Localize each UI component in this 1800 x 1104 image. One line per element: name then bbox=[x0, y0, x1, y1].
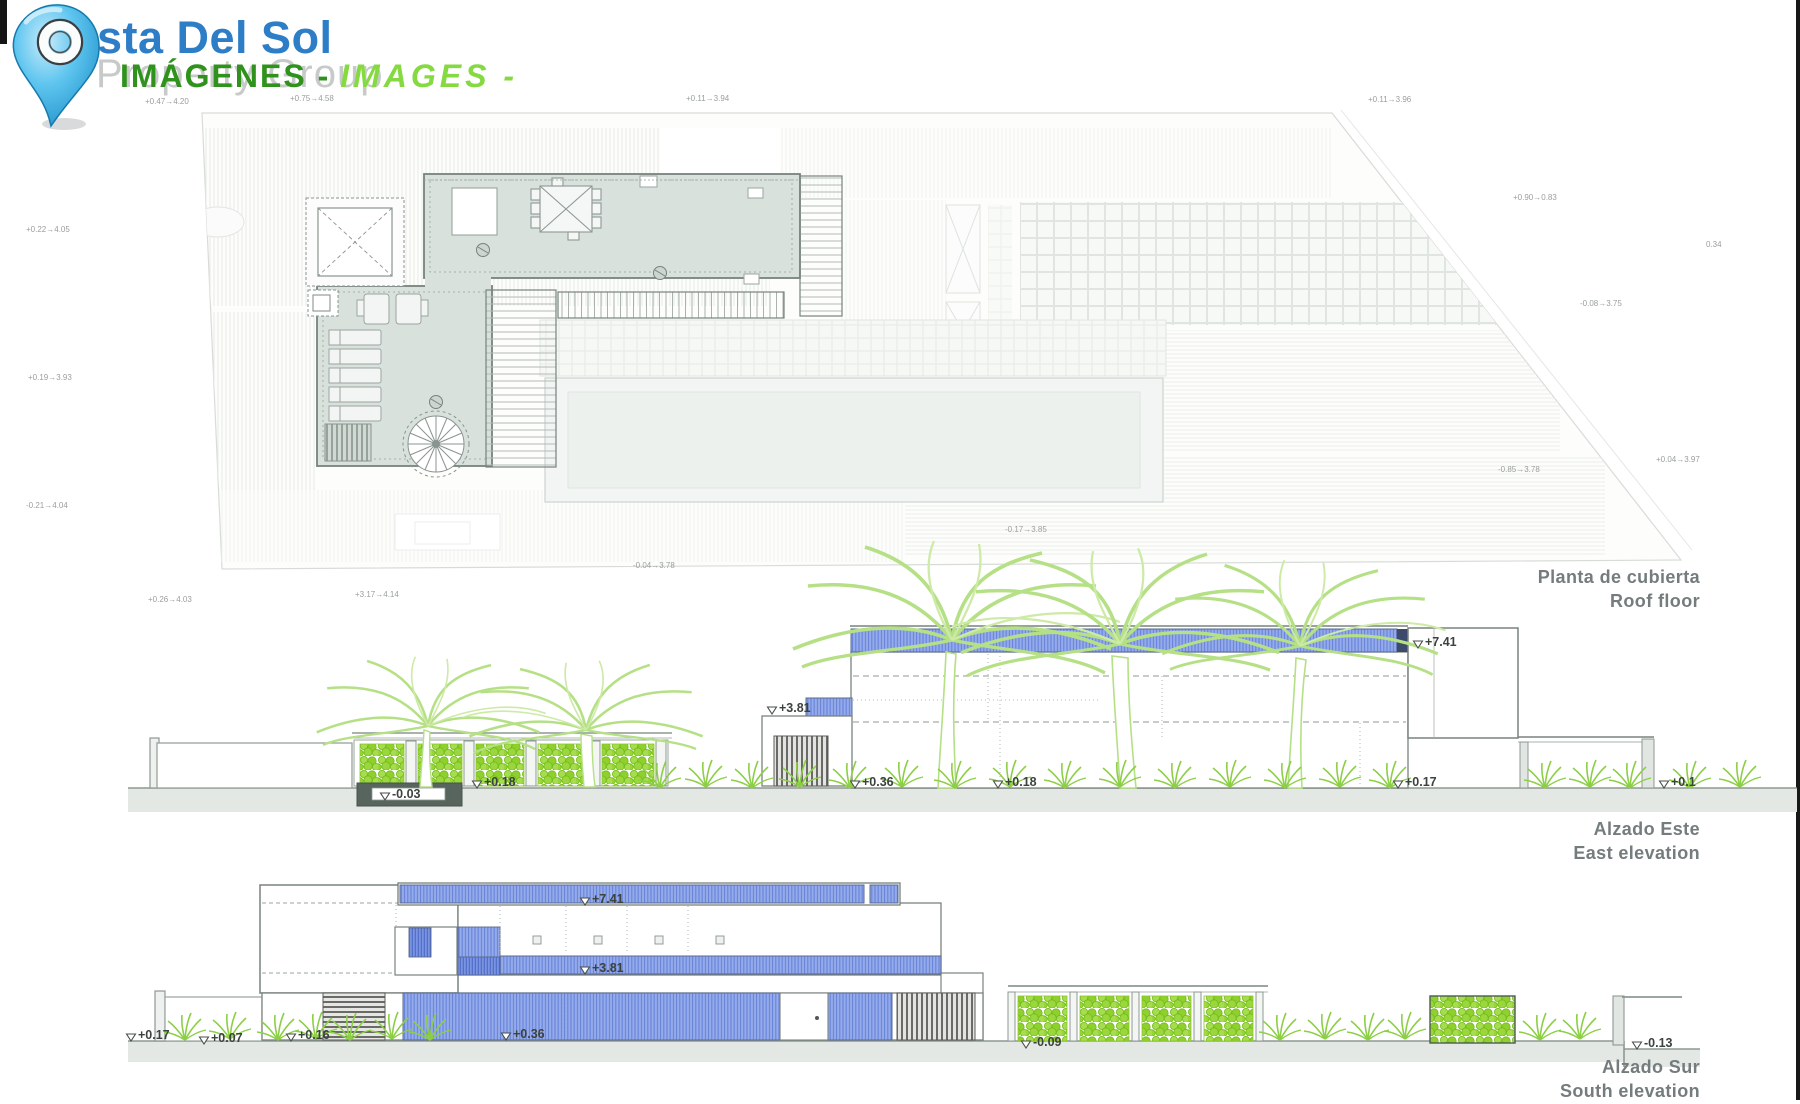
level-marker-value: +0.17 bbox=[1405, 775, 1437, 789]
glass-clerestory bbox=[806, 698, 852, 718]
rooflight bbox=[452, 188, 497, 235]
window bbox=[409, 928, 431, 957]
level-marker-value: +0.17 bbox=[138, 1028, 170, 1042]
south-elevation-drawing: +7.41+3.81+0.17+0.07+0.16+0.36-0.09-0.13 bbox=[127, 883, 1701, 1067]
label-east-elevation: Alzado Este East elevation bbox=[1573, 818, 1700, 866]
level-marker-value: +0.36 bbox=[862, 775, 894, 789]
dimension-label: +0.11→3.96 bbox=[1368, 95, 1412, 104]
dimension-label: -0.17→3.85 bbox=[1005, 525, 1047, 534]
entry-door bbox=[780, 993, 828, 1040]
map-pin-icon bbox=[4, 0, 106, 132]
level-marker-icon bbox=[1660, 781, 1669, 788]
level-marker-value: +7.41 bbox=[1425, 635, 1457, 649]
stairs bbox=[486, 290, 556, 467]
level-marker-value: +0.07 bbox=[211, 1031, 243, 1045]
level-marker-icon bbox=[1633, 1042, 1642, 1049]
glass-band-mid bbox=[500, 956, 941, 974]
page-title-en: IMAGES - bbox=[340, 58, 518, 94]
label-south-elevation: Alzado Sur South elevation bbox=[1560, 1056, 1700, 1104]
glass-band-top bbox=[400, 885, 864, 903]
roof-deck-tiles bbox=[540, 320, 1166, 376]
level-marker-value: +0.18 bbox=[484, 775, 516, 789]
dimension-label: +0.47→4.20 bbox=[145, 97, 189, 106]
pool-water bbox=[568, 392, 1140, 488]
label-roof-en: Roof floor bbox=[1610, 591, 1700, 611]
dimension-label: -0.08→3.75 bbox=[1580, 299, 1622, 308]
dimension-label: +0.26→4.03 bbox=[148, 595, 192, 604]
level-marker-value: -0.09 bbox=[1033, 1035, 1062, 1049]
level-marker-value: +0.36 bbox=[513, 1027, 545, 1041]
boundary-wall bbox=[157, 743, 352, 788]
outdoor-table-set bbox=[531, 178, 601, 240]
dimension-label: +0.19→3.93 bbox=[28, 373, 72, 382]
label-east-en: East elevation bbox=[1573, 843, 1700, 863]
level-marker-value: -0.03 bbox=[392, 787, 421, 801]
dimension-label: -0.21→4.04 bbox=[26, 501, 68, 510]
label-south-es: Alzado Sur bbox=[1602, 1057, 1700, 1077]
dimension-label: 0.34 bbox=[1706, 240, 1722, 249]
dimension-label: -0.04→3.78 bbox=[633, 561, 675, 570]
dimension-label: +0.11→3.94 bbox=[686, 94, 730, 103]
ground-band bbox=[128, 1041, 1624, 1062]
roof-plan-drawing: +0.47→4.20+0.75→4.58+0.11→3.94+0.11→3.96… bbox=[26, 94, 1722, 604]
dimension-label: +0.90→0.83 bbox=[1513, 193, 1557, 202]
roof-grating bbox=[325, 424, 371, 461]
label-east-es: Alzado Este bbox=[1594, 819, 1700, 839]
pergola-slats bbox=[558, 292, 784, 318]
level-marker-value: +0.18 bbox=[1005, 775, 1037, 789]
level-marker-icon bbox=[768, 707, 777, 714]
level-marker-value: +0.16 bbox=[298, 1028, 330, 1042]
dimension-label: -0.85→3.78 bbox=[1498, 465, 1540, 474]
level-marker-value: +0.1 bbox=[1671, 775, 1696, 789]
label-roof-es: Planta de cubierta bbox=[1538, 567, 1700, 587]
level-marker-value: +7.41 bbox=[592, 892, 624, 906]
level-marker-value: -0.13 bbox=[1644, 1036, 1673, 1050]
louver-screen bbox=[897, 993, 975, 1040]
fence-post bbox=[1613, 996, 1624, 1045]
dimension-label: +3.17→4.14 bbox=[355, 590, 399, 599]
label-south-en: South elevation bbox=[1560, 1081, 1700, 1101]
level-marker-value: +3.81 bbox=[779, 701, 811, 715]
dimension-label: +0.22→4.05 bbox=[26, 225, 70, 234]
dimension-label: +0.04→3.97 bbox=[1656, 455, 1700, 464]
level-marker-value: +3.81 bbox=[592, 961, 624, 975]
label-roof-floor: Planta de cubierta Roof floor bbox=[1538, 566, 1700, 614]
architectural-drawing-canvas: +0.47→4.20+0.75→4.58+0.11→3.94+0.11→3.96… bbox=[0, 0, 1800, 1100]
hedge-panel bbox=[1430, 996, 1515, 1043]
level-marker-icon bbox=[127, 1034, 136, 1041]
roof-side-slats bbox=[800, 176, 842, 316]
